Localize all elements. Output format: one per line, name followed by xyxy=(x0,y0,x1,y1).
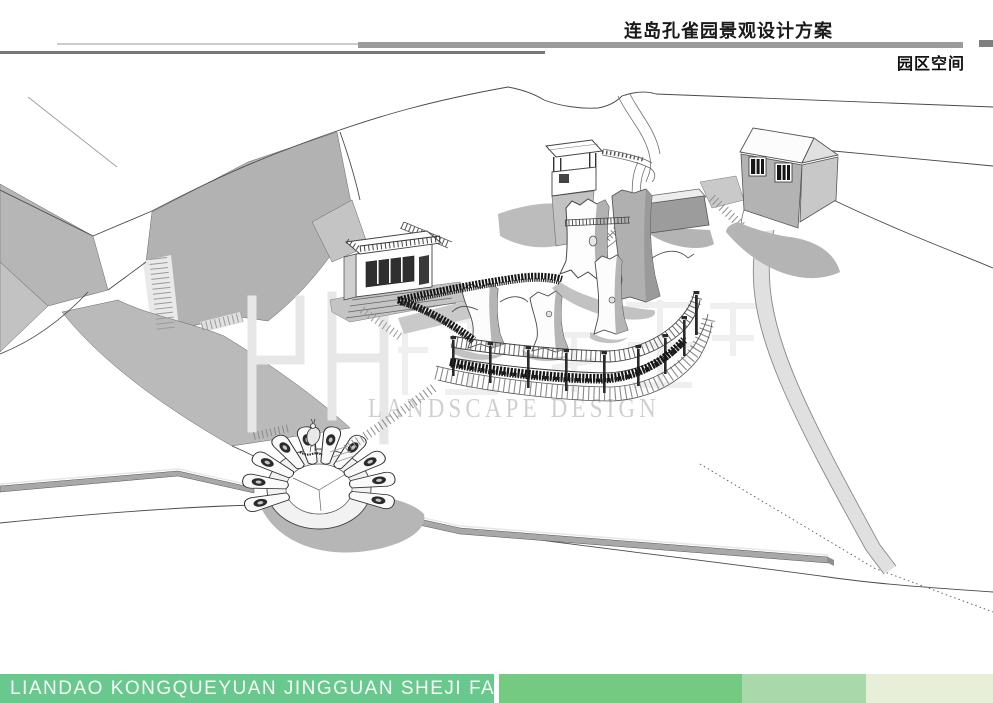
presentation-slide: 连岛孔雀园景观设计方案 园区空间 xyxy=(0,0,993,703)
footer-caption: LIANDAO KONGQUEYUAN JINGGUAN SHEJI FANGA… xyxy=(10,678,494,699)
header-rule-main xyxy=(358,42,963,48)
header-rule-endcap xyxy=(979,40,993,47)
barred-window xyxy=(775,163,792,182)
house-gabled xyxy=(726,128,840,278)
house-gray-roof xyxy=(641,176,744,248)
site-plan-rendering: LANDSCAPE DESIGN xyxy=(0,0,993,703)
footer-color-strip-3 xyxy=(866,674,993,703)
footer-color-strip-2 xyxy=(742,674,866,703)
footer-caption-bar: LIANDAO KONGQUEYUAN JINGGUAN SHEJI FANGA… xyxy=(0,674,494,703)
page-title: 连岛孔雀园景观设计方案 xyxy=(0,17,833,43)
watermark-text: LANDSCAPE DESIGN xyxy=(368,393,660,423)
header-rule-light xyxy=(57,43,373,45)
barred-window xyxy=(749,157,766,176)
section-label: 园区空间 xyxy=(0,50,965,74)
terrain-slopes xyxy=(0,132,368,446)
footer-color-strip-1 xyxy=(499,674,742,703)
